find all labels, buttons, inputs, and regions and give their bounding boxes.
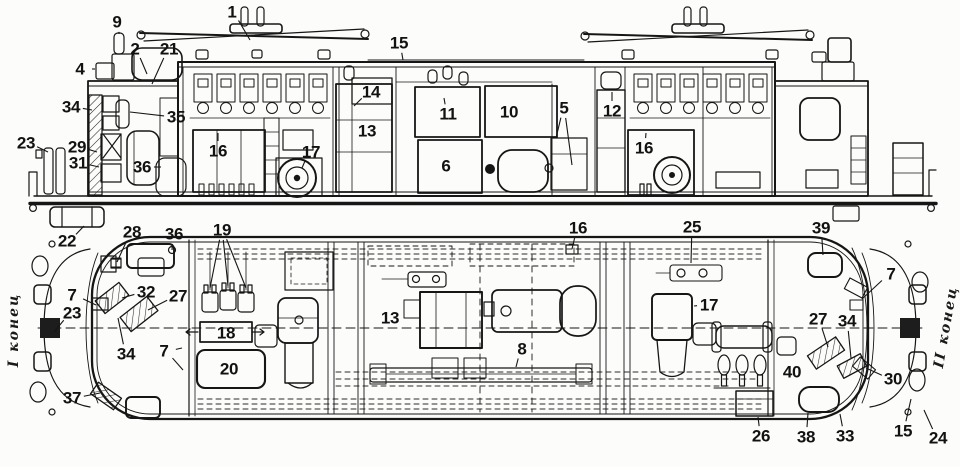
callout-plan-30-22: 30 <box>884 371 902 388</box>
callout-plan-38-24: 38 <box>797 429 815 446</box>
right-coupler <box>929 170 936 196</box>
fan-17-right <box>654 157 690 193</box>
driver-console-27b <box>807 337 844 369</box>
callout-plan-13-12: 13 <box>381 310 399 327</box>
reservoir <box>716 326 772 348</box>
right-coupler-head <box>900 318 920 338</box>
resistor-bank-right <box>630 74 770 118</box>
callout-side-2-2: 2 <box>130 41 139 58</box>
block-16-left <box>193 130 265 192</box>
bay-3 <box>652 265 796 416</box>
side-body-left-module <box>88 81 178 196</box>
device-37 <box>91 382 122 410</box>
battery-box-22 <box>50 207 104 227</box>
cab1-hatch-top <box>127 244 174 268</box>
callout-side-16-21: 16 <box>635 140 653 157</box>
callout-plan-15-26: 15 <box>894 423 912 440</box>
driver-console-34b <box>837 354 867 379</box>
callout-plan-37-9: 37 <box>63 390 81 407</box>
callout-plan-33-25: 33 <box>836 428 854 445</box>
callout-plan-34-19: 34 <box>838 313 856 330</box>
tall-apparatus <box>278 298 318 343</box>
callout-side-34-6: 34 <box>62 99 80 116</box>
callout-side-16-12: 16 <box>209 143 227 160</box>
callout-plan-18-10: 18 <box>217 325 235 342</box>
callout-side-4-4: 4 <box>75 61 84 78</box>
callout-side-35-7: 35 <box>167 109 185 126</box>
callout-plan-7-3: 7 <box>67 287 76 304</box>
callout-plan-40-21: 40 <box>783 364 801 381</box>
cab-1 <box>91 244 174 418</box>
callout-side-12-20: 12 <box>603 103 621 120</box>
callout-side-31-10: 31 <box>69 155 87 172</box>
motor-compressor <box>492 290 562 332</box>
brake-hose <box>44 148 53 194</box>
roof-device-12 <box>601 72 621 89</box>
fan-17-left <box>278 159 316 197</box>
callout-plan-17-17: 17 <box>700 297 718 314</box>
callout-side-9-1: 9 <box>112 14 121 31</box>
motor-generator <box>498 150 548 192</box>
cab-window-side <box>800 98 840 140</box>
right-pantograph <box>581 7 814 59</box>
callout-plan-36-1: 36 <box>165 226 183 243</box>
unit-17-plan <box>652 294 692 340</box>
callout-side-5-19: 5 <box>559 100 568 117</box>
callout-plan-26-23: 26 <box>752 428 770 445</box>
callout-side-1-0: 1 <box>227 4 236 21</box>
transformer-block <box>420 292 482 348</box>
callout-side-10-18: 10 <box>500 104 518 121</box>
callout-plan-25-14: 25 <box>683 219 701 236</box>
callout-side-6-17: 6 <box>441 158 450 175</box>
callout-plan-28-0: 28 <box>123 224 141 241</box>
callout-side-22-22: 22 <box>58 233 76 250</box>
plan-body-outline <box>92 237 868 419</box>
box-under-5 <box>551 138 587 190</box>
cab2-hatch-top <box>808 253 842 277</box>
locomotive-equipment-diagram: I конец II конец 19221415343523293136161… <box>0 0 960 467</box>
bay-2 <box>370 245 596 384</box>
left-coupler-head <box>40 318 60 338</box>
left-coupler <box>29 172 37 196</box>
callout-plan-19-2: 19 <box>213 222 231 239</box>
driver-console-27 <box>120 296 158 331</box>
callout-plan-8-20: 8 <box>517 341 526 358</box>
driver-console-32 <box>95 282 128 313</box>
cab2-hatch-bottom <box>799 387 839 412</box>
bay-1 <box>186 252 333 388</box>
callout-plan-20-11: 20 <box>220 361 238 378</box>
callout-side-14-14: 14 <box>362 84 380 101</box>
left-buffer <box>34 285 51 304</box>
callout-side-15-5: 15 <box>390 35 408 52</box>
callout-plan-24-27: 24 <box>929 430 947 447</box>
device-30 <box>852 357 875 379</box>
callout-plan-32-5: 32 <box>137 284 155 301</box>
callout-side-13-15: 13 <box>358 123 376 140</box>
callout-plan-16-13: 16 <box>569 220 587 237</box>
callout-side-11-16: 11 <box>439 106 456 123</box>
callout-side-21-3: 21 <box>160 41 178 58</box>
callout-side-36-11: 36 <box>133 159 151 176</box>
end-1-caption: I конец <box>7 293 21 368</box>
callout-side-17-13: 17 <box>302 144 320 161</box>
callout-plan-34-7: 34 <box>117 346 135 363</box>
left-skirt <box>44 249 90 407</box>
bench-right-bay <box>716 172 760 188</box>
pipe-assembly-8 <box>370 368 592 382</box>
callout-plan-7-16: 7 <box>886 266 895 283</box>
callout-plan-27-18: 27 <box>809 311 827 328</box>
box-26 <box>736 391 773 416</box>
callout-plan-27-6: 27 <box>169 288 187 305</box>
cab1-hatch-bottom <box>126 397 160 418</box>
antenna-9 <box>114 33 124 54</box>
side-body-centre <box>178 62 775 196</box>
end-panel <box>893 143 923 195</box>
resistor-bank-left <box>190 74 330 118</box>
callout-plan-7-8: 7 <box>159 343 168 360</box>
plan-view <box>30 237 928 419</box>
right-buffer <box>909 285 926 304</box>
side-body-right-module <box>775 81 868 196</box>
end-2-caption: II конец <box>932 285 960 369</box>
callout-plan-23-4: 23 <box>63 305 81 322</box>
block-10 <box>485 86 557 137</box>
fan-pedestal <box>276 158 322 196</box>
callout-plan-39-15: 39 <box>812 220 830 237</box>
callout-side-23-8: 23 <box>17 135 35 152</box>
roof-box-4 <box>96 63 114 79</box>
ladder-column <box>264 118 279 196</box>
apparatus-19 <box>202 292 218 312</box>
